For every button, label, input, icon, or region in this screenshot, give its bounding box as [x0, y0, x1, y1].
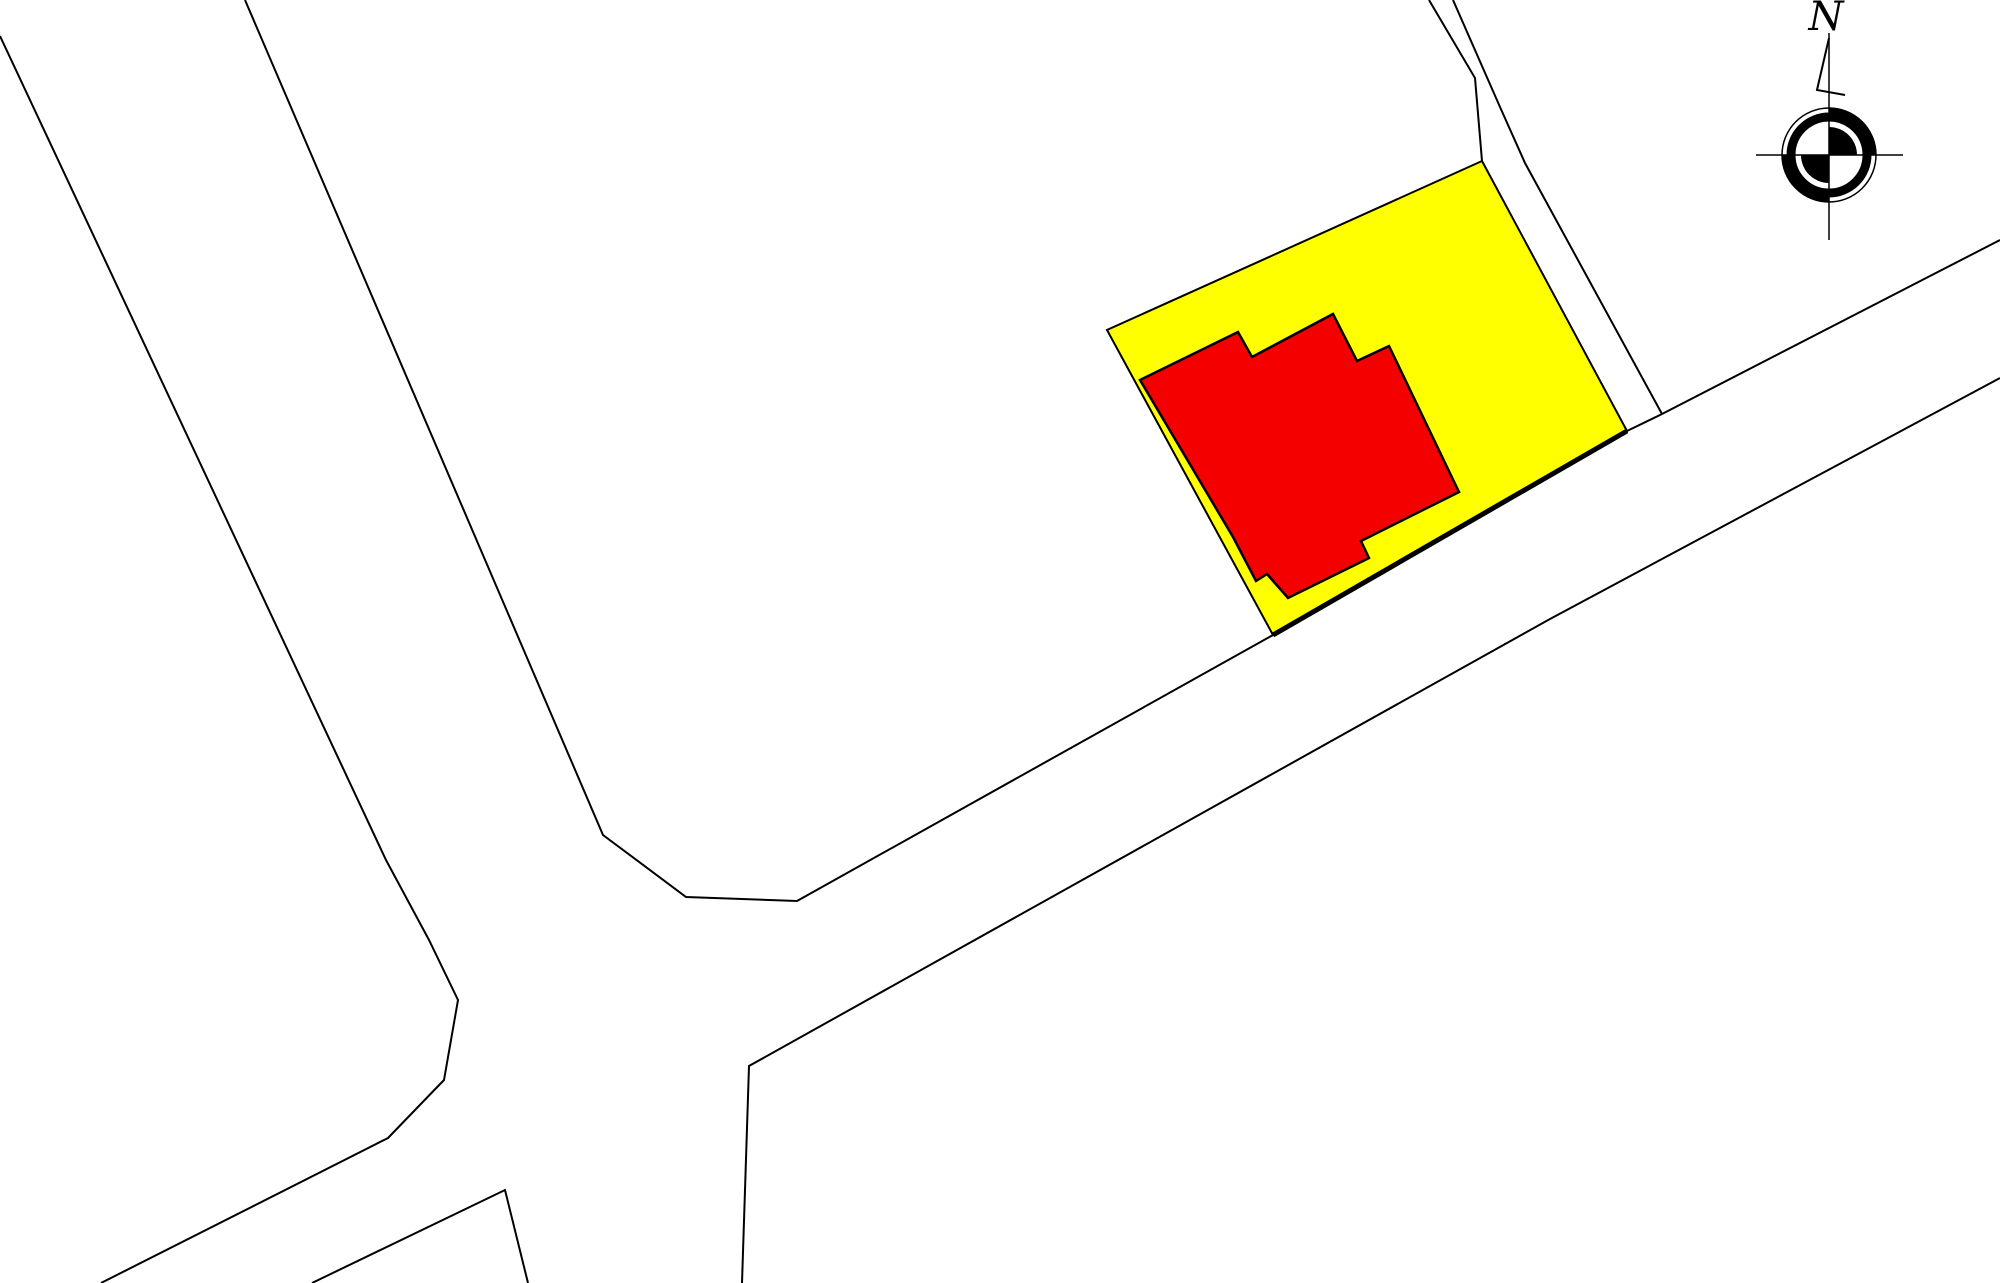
site-plan-canvas: N: [0, 0, 2000, 1283]
north-compass: N: [1756, 0, 1903, 240]
compass-needle-flag: [1817, 38, 1845, 95]
site-plan-page: N: [0, 0, 2000, 1283]
south-parcel-corner-peak: [312, 1190, 528, 1283]
parcel-and-road-linework: [0, 0, 2000, 1283]
compass-north-label: N: [1808, 0, 1846, 40]
side-lane-west-edge: [1429, 0, 1482, 161]
road-west-edge-and-sw-spur: [0, 36, 458, 1283]
road-east-edge-and-main-road-north-edge: [245, 0, 2000, 901]
